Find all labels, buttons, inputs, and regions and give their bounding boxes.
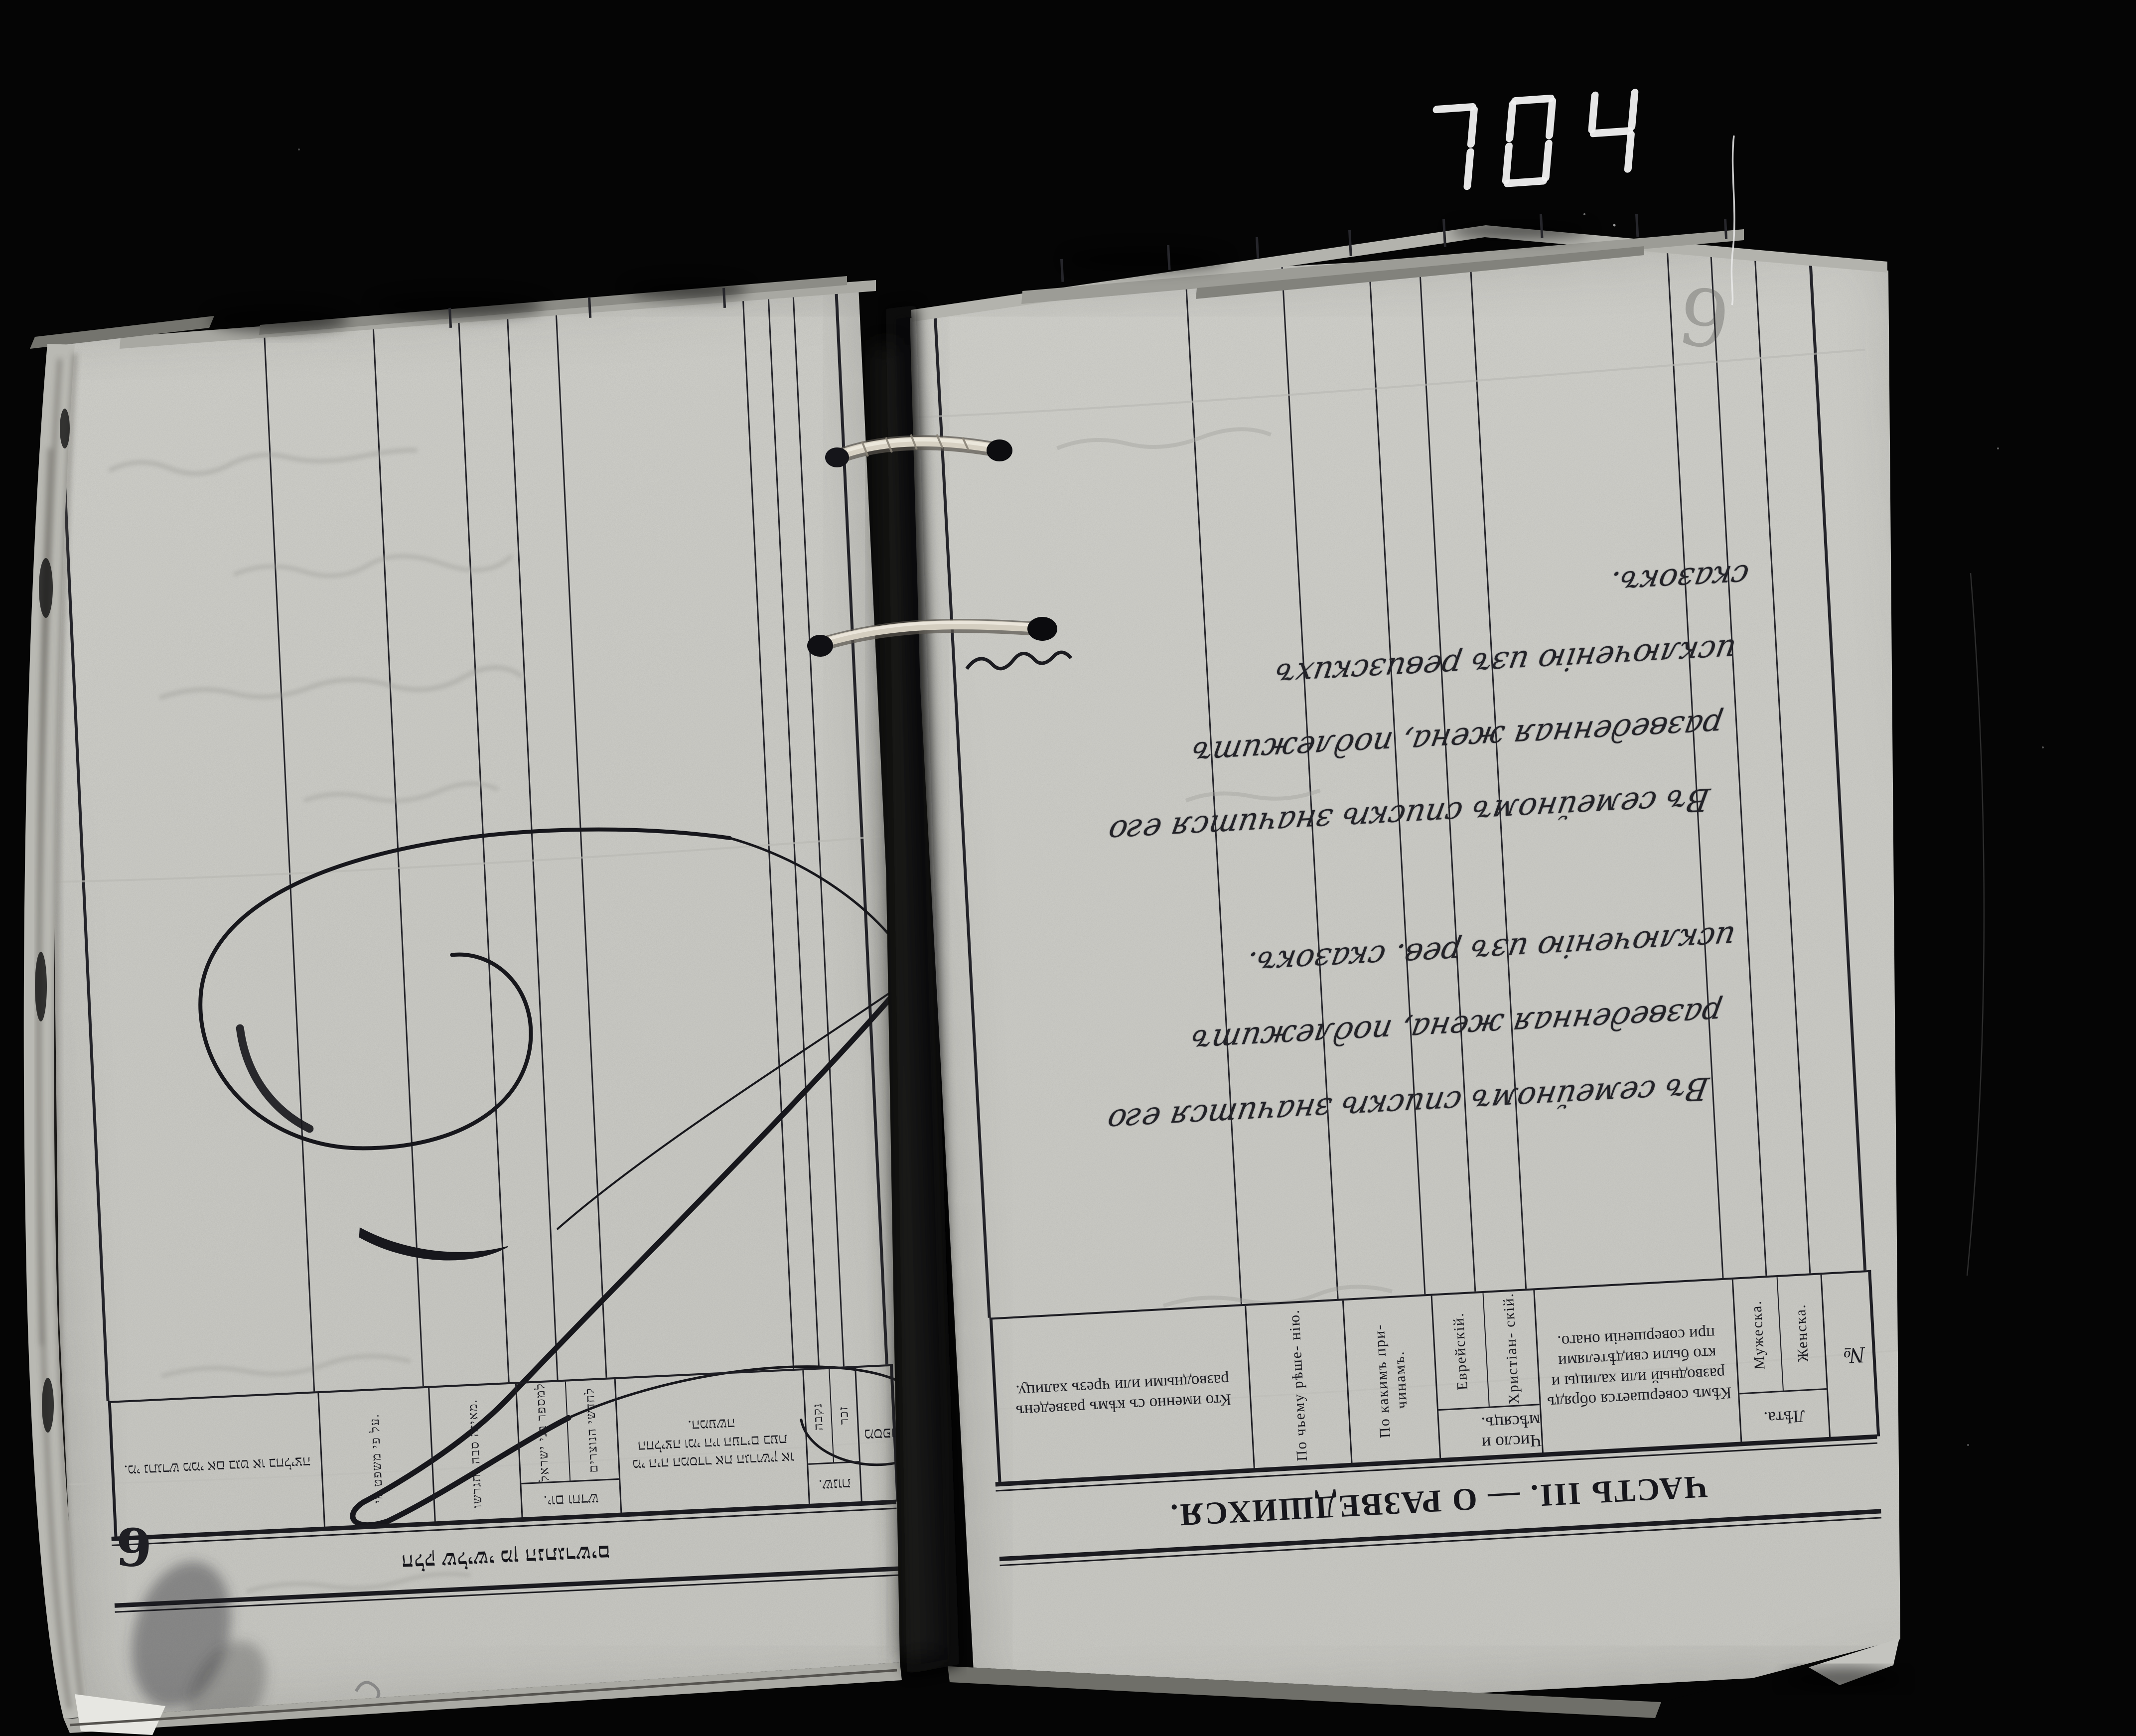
column-rule (506, 302, 559, 1380)
table-column-header: נקבהזכרשנות. (802, 1368, 860, 1506)
column-rule (555, 300, 607, 1378)
table-subcolumn-header: לחדשי הנוצרים (565, 1379, 619, 1480)
table-subcolumn-header: זכר (829, 1368, 859, 1462)
table-column-header: מי נתגרש ממי אם בגט או בחליצה. (111, 1393, 324, 1538)
column-rule (792, 289, 845, 1367)
column-rule (56, 323, 110, 1401)
table-column-header: По какимъ при- чинамъ. (1342, 1296, 1440, 1465)
table-subcolumn-header: נקבה (804, 1369, 833, 1463)
table-column-header: Мужеска.Женска.Лѣта. (1732, 1275, 1830, 1444)
clerk-annotation-lower: Въ семейномъ спискѣ значится егоразведен… (955, 899, 1741, 1166)
right-page: Въ семейномъ спискѣ значится егоразведен… (899, 233, 1977, 1720)
table-column-header: למספר בני ישראללחדשי הנוצריםיום וחדש. (515, 1379, 620, 1519)
pencil-page-number: 9 (1672, 270, 1736, 368)
right-page-table-header: Кто именно съ кѣмъ разведенъ разводными … (990, 1270, 1880, 1484)
archival-scan-photo: מי נתגרש ממי אם בגט או בחליצה.על פי משפט… (0, 0, 2136, 1736)
frame-counter-704 (1424, 93, 1640, 189)
column-rule (767, 290, 820, 1368)
table-column-header: על פי משפט מי. (317, 1388, 434, 1529)
table-column-header: Кѣмъ совершается обрядъ разводный или ха… (1533, 1280, 1740, 1454)
table-column-header: מאיזה סבה נתגרשו. (428, 1384, 522, 1523)
handwritten-page-number: 9 (115, 1516, 153, 1579)
table-subcolumn-header: Христіан- скій. (1482, 1291, 1540, 1407)
column-rule (1710, 243, 1767, 1276)
left-page-column-rules (57, 287, 887, 1401)
table-subcolumn-header: למספר בני ישראל (517, 1382, 570, 1483)
table-subcolumn-header: Еврейскій. (1432, 1293, 1489, 1409)
column-rule (742, 291, 794, 1369)
table-subcolumn-header: Женска. (1776, 1275, 1827, 1390)
column-rule (372, 308, 424, 1386)
table-column-header: По чьему рѣше- нію. (1245, 1301, 1351, 1470)
table-column-header: Еврейскій.Христіан- скій.Число и мѣсяцъ. (1431, 1291, 1542, 1460)
left-page: מי נתגרש ממי אם בגט או בחליצה.על פי משפט… (12, 286, 924, 1725)
column-rule (263, 314, 315, 1392)
table-column-header: № (1821, 1272, 1886, 1439)
column-rule (1753, 241, 1811, 1273)
table-column-header: מספר (854, 1366, 907, 1503)
table-column-header: Кто именно съ кѣмъ разведенъ разводными … (993, 1306, 1254, 1484)
column-rule (835, 287, 888, 1364)
column-rule (457, 304, 510, 1382)
clerk-annotation-upper: Въ семейномъ спискѣ значится егоразведен… (927, 538, 1755, 878)
table-subcolumn-header: Мужеска. (1733, 1277, 1783, 1393)
column-rule (1808, 238, 1866, 1270)
table-column-header: מי היה המסדר את הגרושין או החליצה ומי הי… (614, 1370, 809, 1515)
